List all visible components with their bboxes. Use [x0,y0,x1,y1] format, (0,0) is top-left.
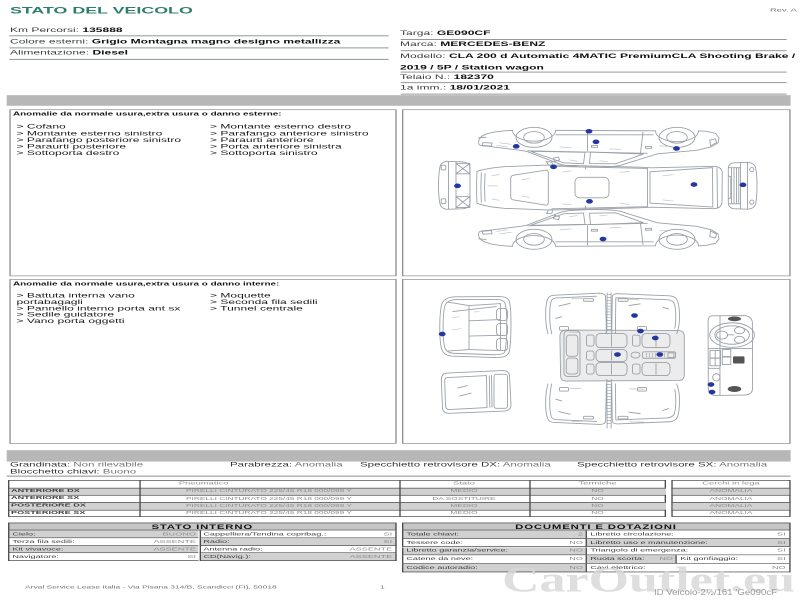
svg-text:ID Veicolo-2½/161 ’Ge090cF: ID Veicolo-2½/161 ’Ge090cF [654,588,777,597]
